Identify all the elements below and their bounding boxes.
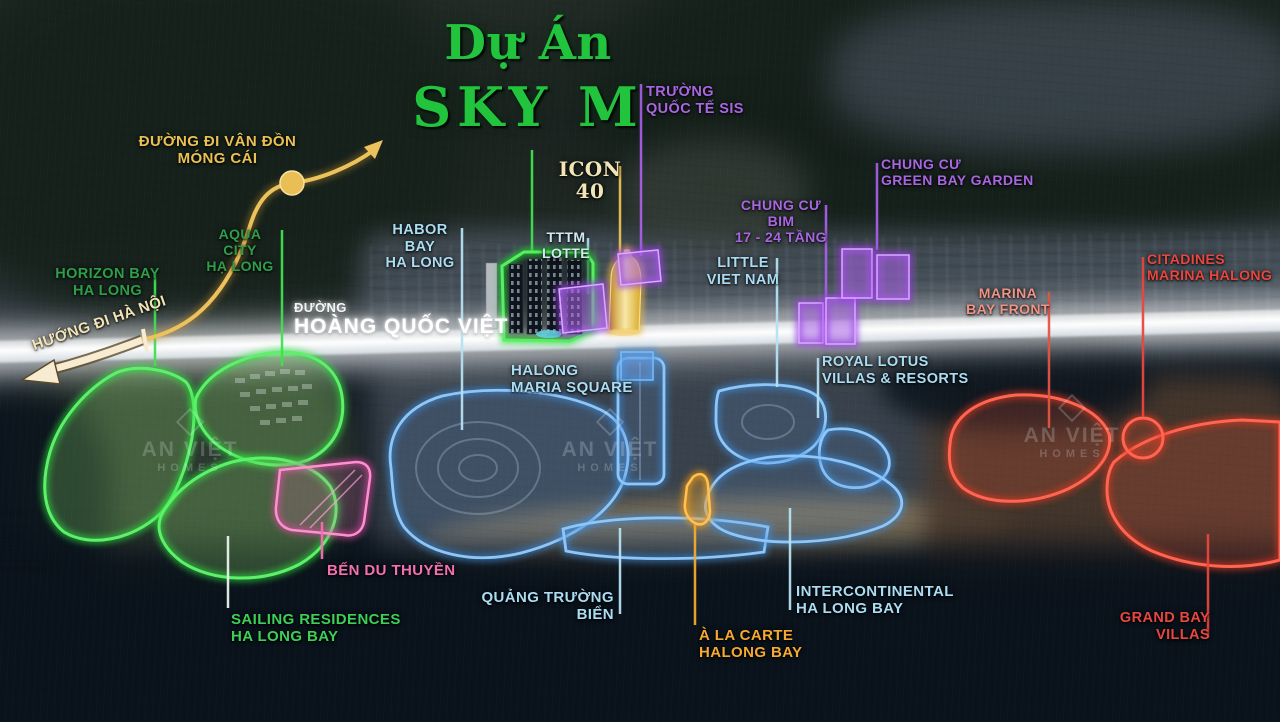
label-royal-lotus: ROYAL LOTUS VILLAS & RESORTS [822,354,969,387]
watermark-right: AN VIỆT HOMES [1012,398,1132,460]
label-sailing-residences: SAILING RESIDENCES HA LONG BAY [231,611,401,646]
watermark-text-1: AN VIỆT [1012,424,1132,448]
watermark-text-2: HOMES [130,462,250,474]
watermark-logo [1058,394,1086,422]
label-intercontinental: INTERCONTINENTAL HA LONG BAY [796,583,954,618]
label-ben-du-thuyen: BẾN DU THUYỀN [327,562,456,579]
label-icon-40: ICON 40 [550,158,630,202]
label-duong-di-van-don: ĐƯỜNG ĐI VÂN ĐỒN MÓNG CÁI [130,133,305,168]
watermark-text-1: AN VIỆT [550,438,670,462]
label-habor-bay-ha-long: HABOR BAY HA LONG [378,222,462,272]
label-marina-bay-front: MARINA BAY FRONT [966,285,1050,317]
watermark-logo [176,408,204,436]
label-chung-cu-bim: CHUNG CƯ BIM 17 - 24 TẦNG [731,197,831,245]
label-a-la-carte: À LA CARTE HALONG BAY [699,627,802,662]
label-aqua-city-ha-long: AQUA CITY HẠ LONG [200,226,280,274]
watermark-left: AN VIỆT HOMES [130,412,250,474]
label-halong-maria-square: HALONG MARIA SQUARE [511,362,633,397]
watermark-center: AN VIỆT HOMES [550,412,670,474]
label-tttm-lotte: TTTM LOTTE [536,229,596,261]
project-title-line1: Dự Án [398,16,658,71]
watermark-text-1: AN VIỆT [130,438,250,462]
map-canvas: Dự Án SKY M ICON 40 TRƯỜNG QUỐC TẾ SIS C… [0,0,1280,722]
label-little-viet-nam: LITTLE VIET NAM [706,255,780,288]
project-title-line2: SKY M [398,76,658,138]
watermark-text-2: HOMES [550,462,670,474]
label-duong-hqv-line1: ĐƯỜNG [294,301,347,316]
label-chung-cu-green-bay-garden: CHUNG CƯ GREEN BAY GARDEN [881,156,1034,188]
watermark-text-2: HOMES [1012,448,1132,460]
label-grand-bay-villas: GRAND BAY VILLAS [1118,610,1210,643]
watermark-logo [596,408,624,436]
label-duong-hqv-line2: HOÀNG QUỐC VIỆT [294,315,509,339]
label-quang-truong-bien: QUẢNG TRƯỜNG BIỂN [480,589,614,624]
label-horizon-bay-ha-long: HORIZON BAY HA LONG [55,266,160,299]
label-citadines-marina-halong: CITADINES MARINA HALONG [1147,251,1272,283]
label-truong-quoc-te-sis: TRƯỜNG QUỐC TẾ SIS [646,84,744,117]
